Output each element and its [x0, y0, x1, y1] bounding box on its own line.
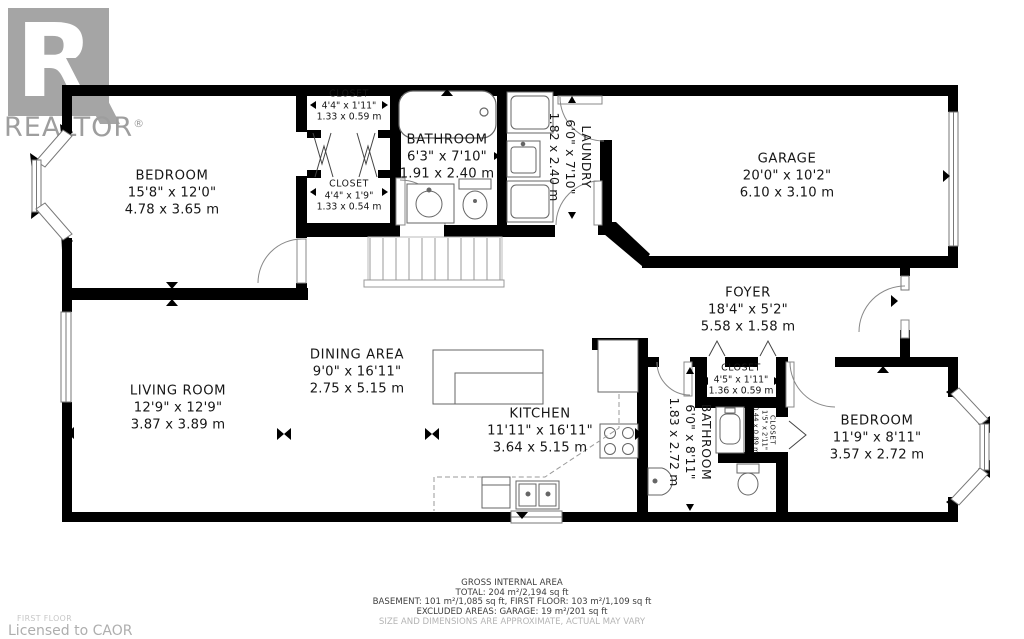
fridge-icon [482, 477, 510, 508]
room-dimensions-metric: 0.44 x 0.89 m [751, 406, 759, 453]
room-label-kitchen: KITCHEN 11'11" x 16'11" 3.64 x 5.15 m [487, 405, 593, 456]
stove-icon [600, 424, 638, 458]
room-dimensions-imperial: 12'9" x 12'9" [130, 399, 226, 416]
pantry-cabinet [598, 340, 638, 392]
room-name: BATHROOM [698, 398, 714, 487]
room-name: LIVING ROOM [130, 382, 226, 399]
kitchen-sink-icon [516, 481, 559, 509]
closet4-door [789, 421, 806, 449]
plan-corner-info: FIRST FLOOR Licensed to CAOR [8, 614, 132, 639]
room-label-bedroom-2: BEDROOM 11'9" x 8'11" 3.57 x 2.72 m [830, 412, 925, 463]
room-dimensions-imperial: 9'0" x 16'11" [310, 363, 405, 380]
room-name: KITCHEN [487, 405, 593, 422]
room-dimensions-metric: 6.10 x 3.10 m [740, 185, 835, 202]
room-name: GARAGE [740, 150, 835, 167]
room-dimensions-metric: 2.75 x 5.15 m [310, 381, 405, 398]
room-dimensions-metric: 3.64 x 5.15 m [487, 440, 593, 457]
area-disclaimer: SIZE AND DIMENSIONS ARE APPROXIMATE, ACT… [0, 618, 1024, 628]
room-label-dining-area: DINING AREA 9'0" x 16'11" 2.75 x 5.15 m [310, 346, 405, 397]
room-label-closet-3: CLOSET 4'5" x 1'11" 1.36 x 0.59 m [709, 363, 774, 398]
door-bathroom2 [657, 362, 692, 396]
room-dimensions-metric: 1.82 x 2.40 m [546, 113, 562, 202]
room-dimensions-metric: 4.78 x 3.65 m [125, 202, 220, 219]
door-front-entry [859, 286, 909, 338]
room-dimensions-metric: 1.33 x 0.54 m [317, 202, 382, 214]
vanity-sink-icon [407, 184, 454, 223]
room-dimensions-metric: 1.36 x 0.59 m [709, 386, 774, 398]
room-name: CLOSET [768, 406, 776, 453]
laundry-sink-icon [507, 141, 540, 177]
room-label-foyer: FOYER 18'4" x 5'2" 5.58 x 1.58 m [701, 284, 796, 335]
license-label: Licensed to CAOR [8, 623, 132, 639]
toilet-icon-2 [737, 464, 759, 495]
room-dimensions-imperial: 6'0" x 7'10" [562, 113, 578, 202]
vanity-sink-icon-2 [716, 407, 744, 453]
room-label-bathroom-1: BATHROOM 6'3" x 7'10" 1.91 x 2.40 m [400, 131, 495, 182]
room-label-closet-1: CLOSET 4'4" x 1'11" 1.33 x 0.59 m [317, 89, 382, 124]
room-dimensions-imperial: 6'0" x 8'11" [682, 398, 698, 487]
room-name: BATHROOM [400, 131, 495, 148]
room-dimensions-metric: 1.91 x 2.40 m [400, 166, 495, 183]
room-name: BEDROOM [125, 167, 220, 184]
room-dimensions-metric: 1.83 x 2.72 m [666, 398, 682, 487]
room-name: CLOSET [317, 89, 382, 101]
room-dimensions-imperial: 4'5" x 1'11" [709, 374, 774, 386]
room-name: LAUNDRY [578, 113, 594, 202]
room-dimensions-metric: 3.87 x 3.89 m [130, 417, 226, 434]
room-label-closet-4: CLOSET 1'5" x 2'11" 0.44 x 0.89 m [751, 406, 776, 453]
room-dimensions-imperial: 6'3" x 7'10" [400, 148, 495, 165]
room-name: DINING AREA [310, 346, 405, 363]
floor-label: FIRST FLOOR [17, 614, 132, 623]
area-summary: GROSS INTERNAL AREA TOTAL: 204 m²/2,194 … [0, 579, 1024, 628]
room-name: CLOSET [709, 363, 774, 375]
door-bedroom1 [258, 239, 306, 283]
room-dimensions-imperial: 18'4" x 5'2" [701, 301, 796, 318]
room-dimensions-imperial: 15'8" x 12'0" [125, 184, 220, 201]
room-label-bathroom-2: BATHROOM 6'0" x 8'11" 1.83 x 2.72 m [666, 398, 714, 487]
stairs-icon [364, 237, 504, 287]
room-name: BEDROOM [830, 412, 925, 429]
room-dimensions-metric: 3.57 x 2.72 m [830, 447, 925, 464]
room-dimensions-imperial: 4'4" x 1'9" [317, 190, 382, 202]
door-bedroom2 [786, 362, 835, 407]
room-dimensions-metric: 1.33 x 0.59 m [317, 112, 382, 124]
room-dimensions-imperial: 4'4" x 1'11" [317, 100, 382, 112]
room-label-living-room: LIVING ROOM 12'9" x 12'9" 3.87 x 3.89 m [130, 382, 226, 433]
room-dimensions-imperial: 11'9" x 8'11" [830, 429, 925, 446]
room-name: FOYER [701, 284, 796, 301]
room-dimensions-imperial: 20'0" x 10'2" [740, 167, 835, 184]
floor-plan: R REALTOR® [0, 0, 1024, 639]
room-dimensions-metric: 5.58 x 1.58 m [701, 319, 796, 336]
room-dimensions-imperial: 11'11" x 16'11" [487, 422, 593, 439]
room-label-closet-2: CLOSET 4'4" x 1'9" 1.33 x 0.54 m [317, 179, 382, 214]
toilet-icon [459, 179, 491, 219]
room-dimensions-imperial: 1'5" x 2'11" [760, 406, 768, 453]
plan-drawing [0, 0, 1024, 639]
room-label-garage: GARAGE 20'0" x 10'2" 6.10 x 3.10 m [740, 150, 835, 201]
room-name: CLOSET [317, 179, 382, 191]
room-label-laundry: LAUNDRY 6'0" x 7'10" 1.82 x 2.40 m [546, 113, 594, 202]
kitchen-island [433, 350, 543, 404]
room-label-bedroom-1: BEDROOM 15'8" x 12'0" 4.78 x 3.65 m [125, 167, 220, 218]
